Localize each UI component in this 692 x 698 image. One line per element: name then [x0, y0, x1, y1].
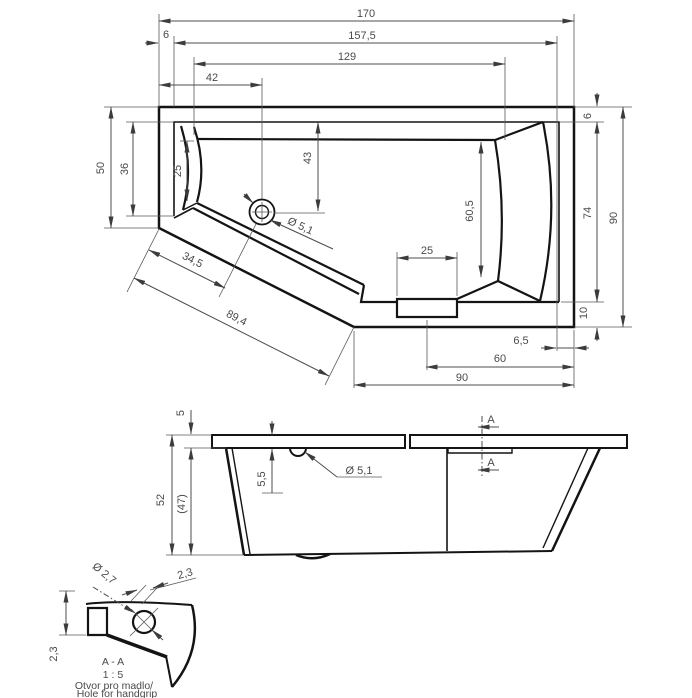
dim-width-36: 36: [119, 163, 131, 175]
bathtub-technical-drawing: 170 157,5 6 129 42 50 36 25 43 60,5 Ø 5,…: [0, 0, 692, 698]
detail-note-english: Hole for handgrip: [77, 688, 158, 698]
detail-bottom-diagonal: [107, 635, 167, 657]
side-bottom-edge: [244, 551, 552, 555]
bowl-top-edge: [197, 122, 543, 140]
side-right-wall-inner: [543, 448, 588, 548]
side-view: 5 52 (47) 5,5 Ø 5,1 A A: [155, 410, 627, 558]
drain-crosshair: [252, 202, 272, 222]
dim-bottom-6-5: 6,5: [513, 335, 528, 347]
side-right-wall: [552, 448, 600, 551]
dim-thickness-2-3-left: 2,3: [48, 646, 60, 661]
dim-hole-2-7: Ø 2,7: [90, 560, 118, 586]
dim-height-52: 52: [155, 494, 167, 506]
dim-length-129: 129: [338, 51, 356, 63]
dim-rim-5: 5: [175, 410, 187, 416]
dim-height-90: 90: [608, 212, 620, 224]
detail-view-a-a: Ø 2,7 2,3 2,3 A - A 1 : 5 Otvor pro madl…: [48, 560, 196, 698]
backrest-bottom-edge: [498, 281, 540, 301]
dim-drain-43: 43: [302, 152, 314, 164]
detail-section-label: A - A: [102, 656, 124, 668]
side-handgrip-hole: [290, 448, 306, 456]
section-mark-a-top: A: [487, 414, 495, 426]
dim-length-157-5: 157,5: [348, 30, 376, 42]
backrest-outer-curve: [540, 122, 551, 301]
dim-bottom-60: 60: [494, 353, 506, 365]
section-mark-a-bottom: A: [487, 457, 495, 469]
dim-rim-left-6: 6: [163, 29, 169, 41]
tub-rim-inner-bottom: [361, 285, 559, 302]
dim-height-47: (47): [176, 494, 188, 514]
detail-fan-arc: [172, 605, 195, 687]
backrest-inner-curve: [495, 140, 502, 281]
bowl-floor-edge: [457, 281, 498, 299]
dim-grip-25: 25: [421, 245, 433, 257]
dim-width-50: 50: [95, 162, 107, 174]
dim-seat-25: 25: [172, 165, 184, 177]
dim-length-42: 42: [206, 72, 218, 84]
dim-bottom-10: 10: [578, 307, 590, 319]
plan-view: 170 157,5 6 129 42 50 36 25 43 60,5 Ø 5,…: [95, 8, 632, 388]
detail-rim-bar: [88, 608, 107, 635]
dim-hole-5-5: 5,5: [256, 471, 268, 486]
dim-hole-diameter: Ø 5,1: [346, 465, 373, 477]
rim-slab-left: [212, 435, 405, 448]
detail-fan-inner: [166, 656, 172, 687]
dim-height-74: 74: [582, 207, 594, 219]
dim-thickness-2-3-top: 2,3: [176, 566, 194, 582]
dim-bottom-90: 90: [456, 372, 468, 384]
dim-width-60-5: 60,5: [464, 200, 476, 221]
detail-top-edge: [86, 602, 192, 605]
handgrip-recess: [397, 299, 457, 317]
dim-length-overall: 170: [357, 8, 375, 20]
rim-slab-right: [410, 435, 627, 448]
dim-rim-right-6: 6: [582, 113, 594, 119]
bowl-diagonal-upper: [197, 203, 364, 285]
bowl-diagonal-lower: [193, 208, 359, 294]
